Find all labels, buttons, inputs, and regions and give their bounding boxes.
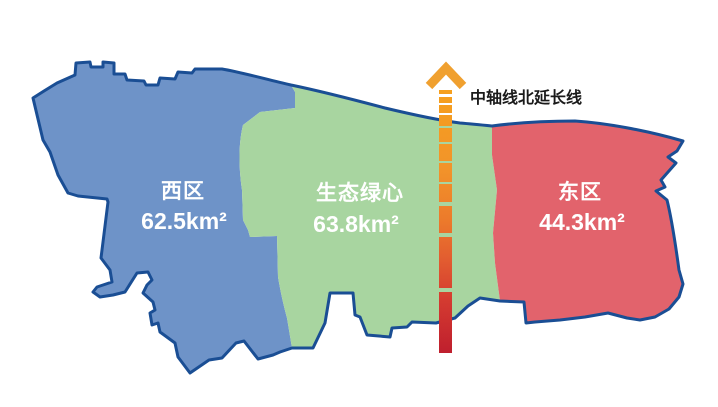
east-district-name: 东区 (558, 182, 602, 203)
east-district-area: 44.3km² (539, 211, 625, 234)
axis-extension-label: 中轴线北延长线 (470, 91, 582, 107)
green-heart-area: 63.8km² (313, 213, 399, 236)
west-district-area: 62.5km² (141, 210, 227, 233)
axis-arrow-icon (429, 68, 463, 86)
west-district-name: 西区 (161, 181, 205, 202)
axis-dashed-line (439, 90, 452, 353)
district-map: 西区 62.5km² 生态绿心 63.8km² 东区 44.3km² 中轴线北延… (0, 0, 718, 407)
green-heart-name: 生态绿心 (316, 183, 404, 204)
